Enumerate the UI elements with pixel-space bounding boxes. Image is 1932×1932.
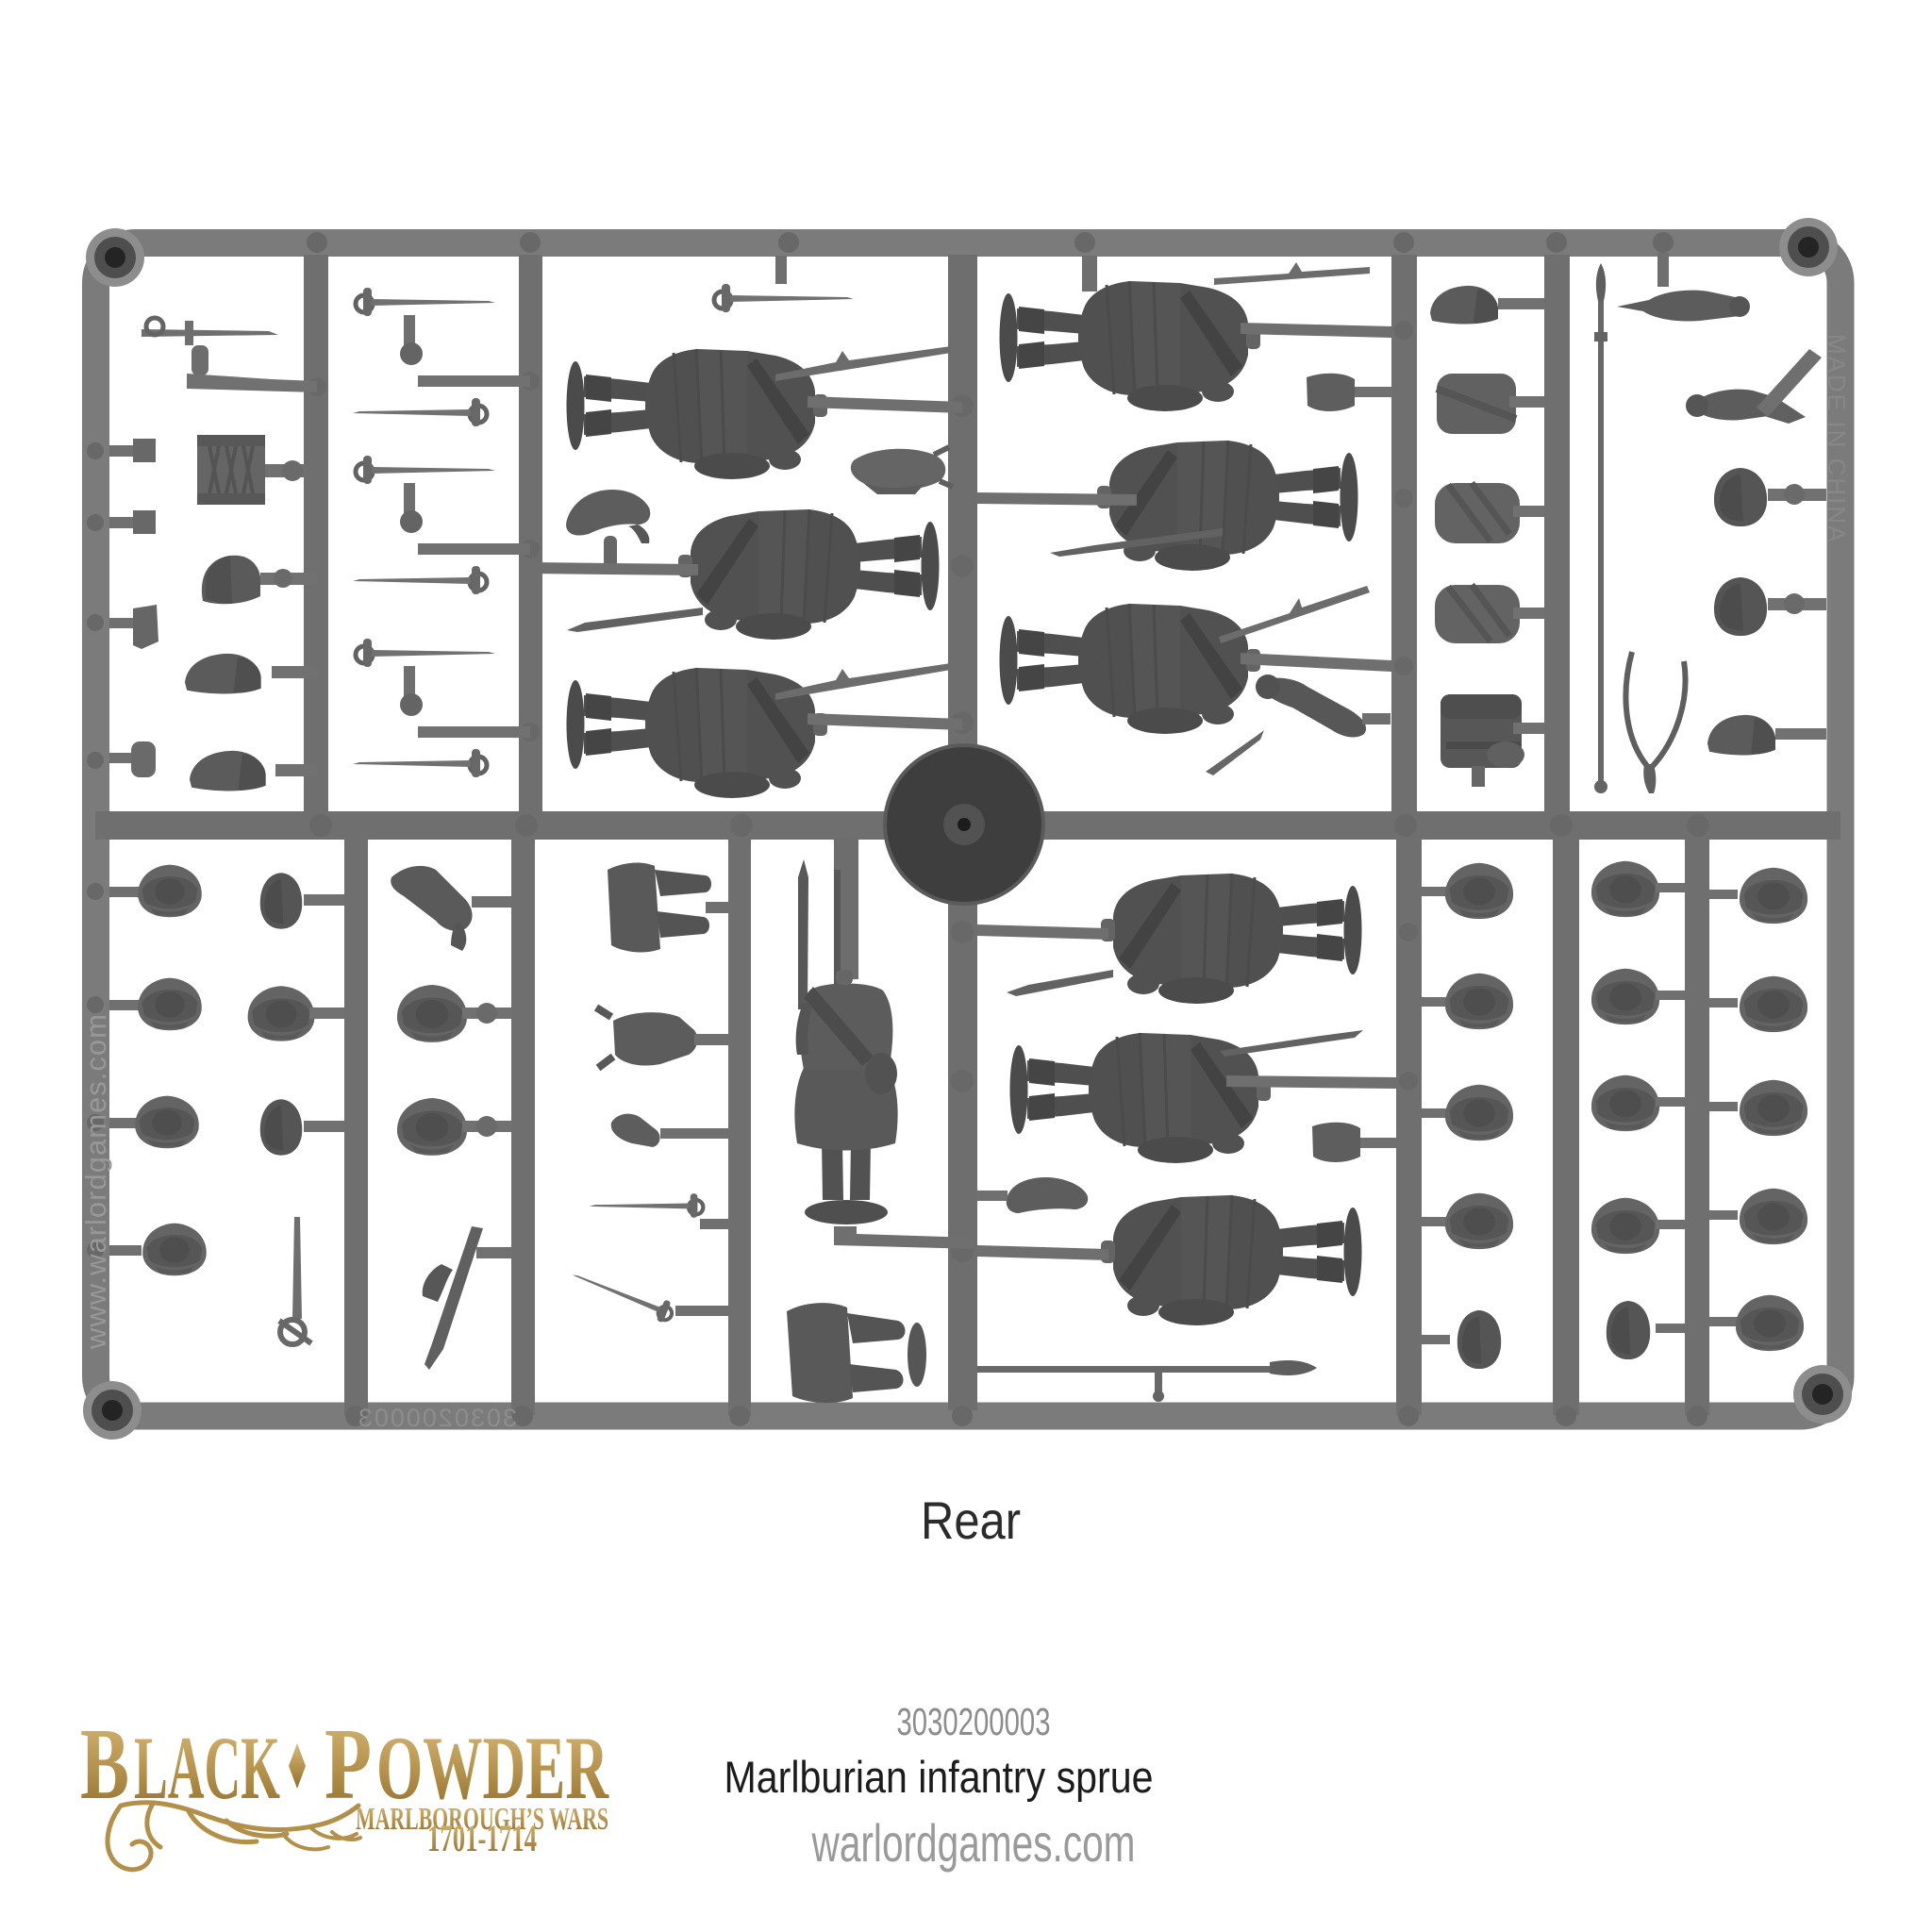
svg-text:1701-1714: 1701-1714 bbox=[427, 1817, 537, 1859]
svg-text:warlordgames.com: warlordgames.com bbox=[811, 1813, 1136, 1873]
svg-text:www.warlordgames.com: www.warlordgames.com bbox=[79, 1013, 112, 1350]
svg-text:3030200003: 3030200003 bbox=[897, 1700, 1051, 1743]
svg-text:Marlburian infantry sprue: Marlburian infantry sprue bbox=[724, 1752, 1154, 1802]
svg-text:3030200003: 3030200003 bbox=[357, 1404, 517, 1432]
svg-text:Rear: Rear bbox=[921, 1491, 1021, 1550]
svg-text:MADE IN CHINA: MADE IN CHINA bbox=[1823, 334, 1851, 543]
